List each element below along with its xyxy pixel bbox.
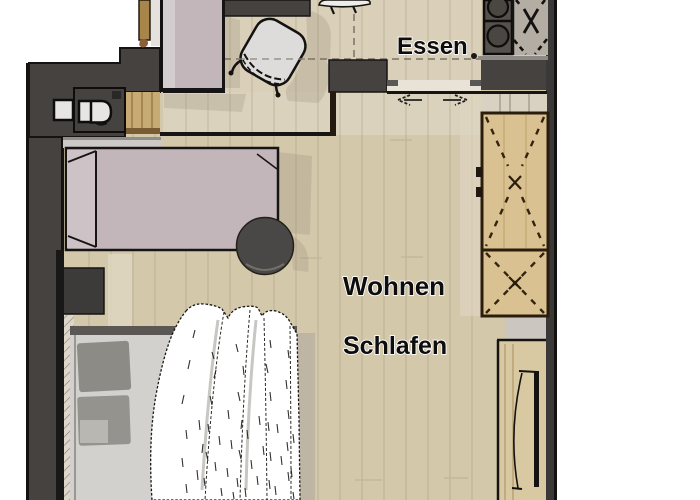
svg-text:Schlafen: Schlafen: [343, 332, 447, 360]
svg-text:Wohnen: Wohnen: [343, 271, 445, 301]
svg-text:Essen: Essen: [397, 33, 468, 60]
